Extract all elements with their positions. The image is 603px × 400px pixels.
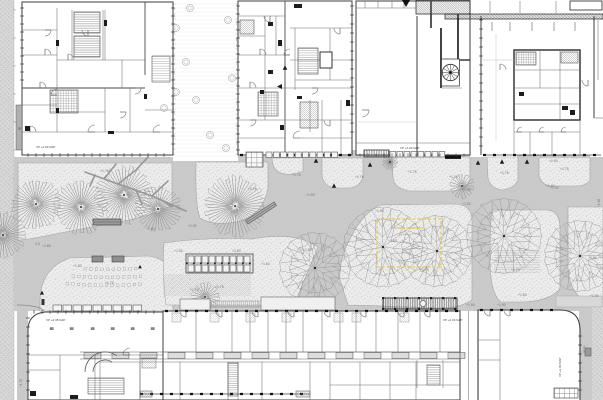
svg-text:+1.98: +1.98 bbox=[597, 199, 601, 207]
svg-text:+1.78: +1.78 bbox=[500, 171, 509, 175]
svg-text:VP +2.00 NAP: VP +2.00 NAP bbox=[558, 358, 562, 377]
svg-text:+1.80: +1.80 bbox=[375, 209, 384, 213]
svg-text:+1.95: +1.95 bbox=[466, 303, 475, 307]
svg-text:+1.76: +1.76 bbox=[100, 169, 109, 173]
svg-text:+1.90: +1.90 bbox=[549, 159, 558, 163]
svg-text:2,5: 2,5 bbox=[35, 242, 40, 246]
svg-text:+1.76: +1.76 bbox=[248, 187, 257, 191]
svg-text:+1.80: +1.80 bbox=[462, 202, 471, 206]
svg-text:+1.76: +1.76 bbox=[449, 175, 458, 179]
svg-text:+1.76: +1.76 bbox=[190, 288, 199, 292]
svg-text:+1.76: +1.76 bbox=[292, 173, 301, 177]
svg-text:+1.90: +1.90 bbox=[590, 294, 599, 298]
svg-text:VP +2.38 NAP: VP +2.38 NAP bbox=[46, 318, 65, 322]
svg-text:VP +2.00 NAP: VP +2.00 NAP bbox=[36, 145, 55, 149]
svg-text:+1.90: +1.90 bbox=[306, 193, 315, 197]
svg-text:+1.76: +1.76 bbox=[355, 175, 364, 179]
svg-text:+1.85: +1.85 bbox=[42, 244, 51, 248]
svg-text:VP +2.00 NAP: VP +2.00 NAP bbox=[400, 146, 419, 150]
svg-text:+1.75: +1.75 bbox=[215, 285, 224, 289]
svg-text:+1.80: +1.80 bbox=[518, 293, 527, 297]
svg-text:+1.80: +1.80 bbox=[146, 227, 155, 231]
svg-text:+1.90: +1.90 bbox=[497, 303, 506, 307]
svg-text:+1.90: +1.90 bbox=[174, 249, 183, 253]
svg-text:+1.80: +1.80 bbox=[546, 184, 555, 188]
svg-text:+1.76: +1.76 bbox=[105, 281, 114, 285]
svg-text:+1.60: +1.60 bbox=[388, 239, 397, 243]
svg-text:+1.80: +1.80 bbox=[232, 249, 241, 253]
svg-text:+1.79: +1.79 bbox=[420, 268, 429, 272]
svg-text:+1.80: +1.80 bbox=[303, 248, 312, 252]
svg-text:+1.90: +1.90 bbox=[188, 224, 197, 228]
svg-text:+1.80: +1.80 bbox=[73, 264, 82, 268]
svg-text:+1.60: +1.60 bbox=[261, 262, 270, 266]
svg-text:+1.76: +1.76 bbox=[19, 379, 23, 387]
svg-text:+1.79: +1.79 bbox=[511, 268, 520, 272]
svg-text:+1.76: +1.76 bbox=[408, 170, 417, 174]
svg-text:+1.90: +1.90 bbox=[462, 188, 471, 192]
svg-text:+1.78: +1.78 bbox=[560, 167, 569, 171]
svg-text:+1.86: +1.86 bbox=[588, 256, 597, 260]
svg-text:locatie kunstwerk: locatie kunstwerk bbox=[394, 226, 423, 230]
svg-text:VP +2.30 NAP: VP +2.30 NAP bbox=[443, 318, 462, 322]
